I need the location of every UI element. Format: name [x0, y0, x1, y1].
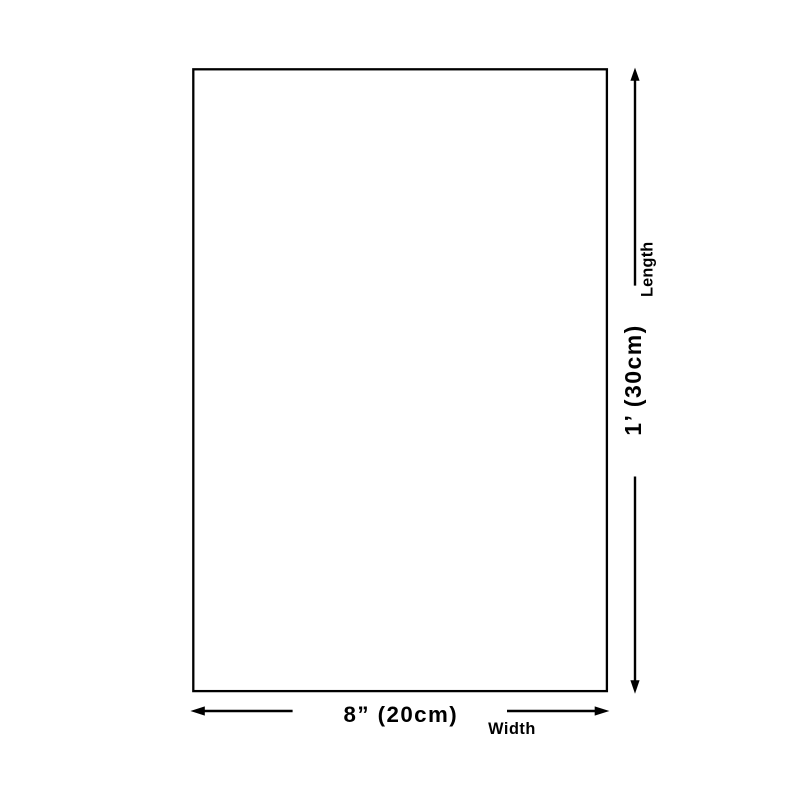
svg-text:1’ (30cm): 1’ (30cm) — [620, 324, 646, 436]
svg-text:Width: Width — [488, 720, 536, 738]
svg-text:Length: Length — [639, 242, 657, 297]
svg-text:8” (20cm): 8” (20cm) — [344, 702, 459, 727]
